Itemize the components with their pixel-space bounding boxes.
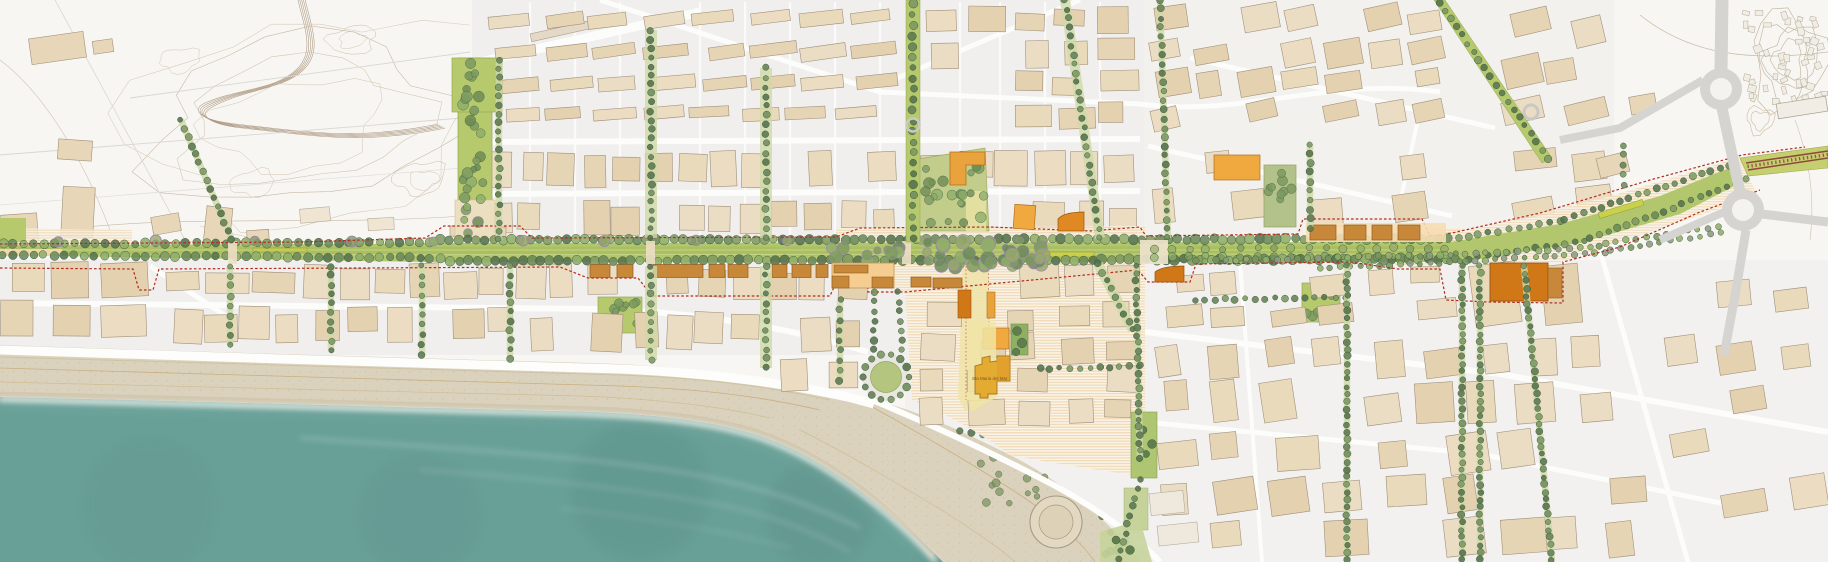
svg-text:Sta Maria del Mar: Sta Maria del Mar [972, 376, 1008, 381]
